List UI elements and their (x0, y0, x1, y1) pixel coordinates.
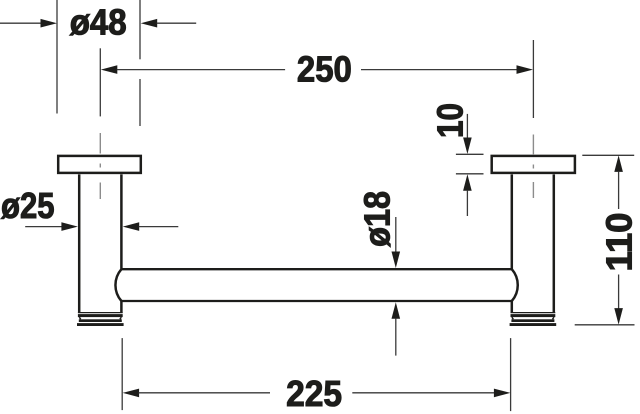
svg-text:225: 225 (286, 373, 342, 414)
svg-text:ø18: ø18 (357, 191, 398, 247)
svg-text:250: 250 (297, 49, 352, 90)
svg-text:110: 110 (598, 213, 639, 272)
svg-text:10: 10 (429, 103, 470, 138)
svg-text:ø48: ø48 (70, 2, 127, 43)
svg-text:ø25: ø25 (1, 185, 55, 226)
